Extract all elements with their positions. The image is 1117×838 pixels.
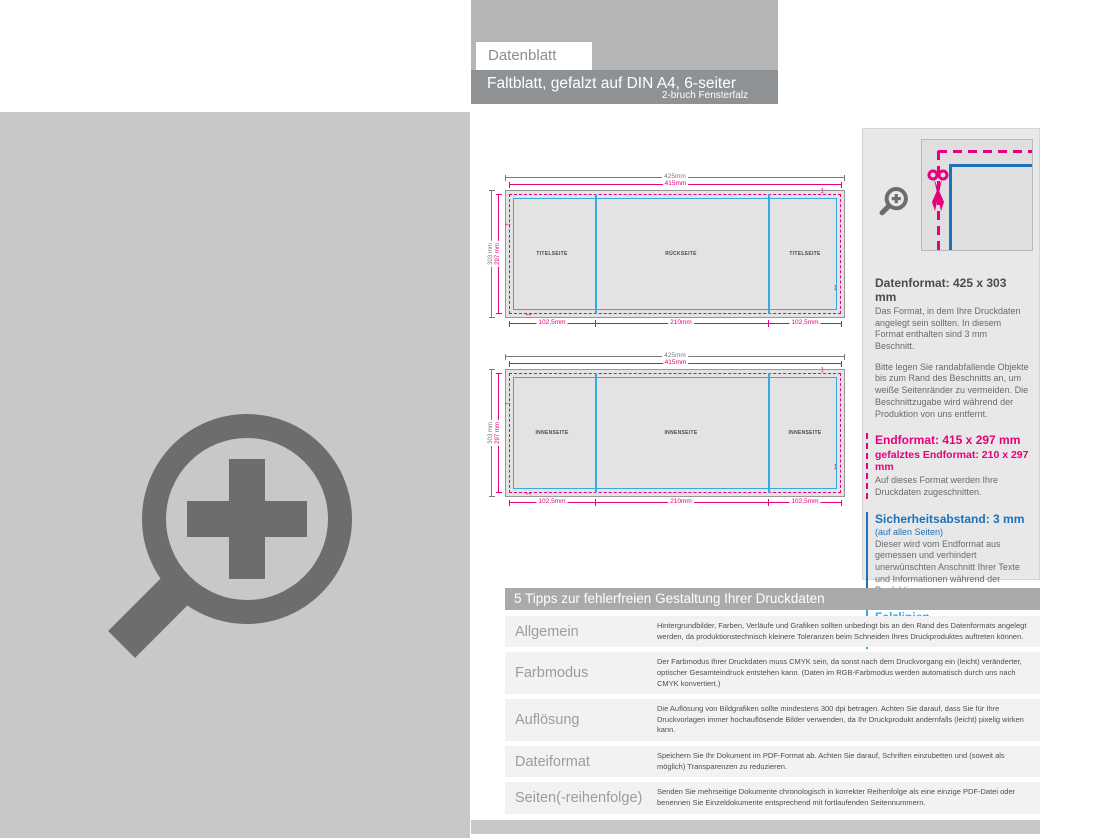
dim-height-end: 297 mm: [498, 373, 499, 493]
datenblatt-tab: Datenblatt: [476, 42, 592, 70]
fold-line: [595, 373, 597, 493]
corner-detail-figure: [875, 137, 1029, 263]
table-row: Farbmodus Der Farbmodus Ihrer Druckdaten…: [505, 652, 1040, 694]
tip-label: Allgemein: [505, 616, 657, 647]
scissors-icon: [926, 166, 950, 216]
fold-line: [768, 373, 770, 493]
tip-label: Dateiformat: [505, 746, 657, 777]
panel-label: INNENSEITE: [535, 430, 568, 436]
bleed-arrow-icon: ↕: [833, 283, 838, 292]
table-row: Auflösung Die Auflösung von Bildgrafiken…: [505, 699, 1040, 741]
fold-line: [768, 194, 770, 314]
trim-line-detail: [938, 150, 1032, 153]
datenformat-body: Das Format, in dem Ihre Druckdaten angel…: [875, 306, 1029, 353]
dim-label: 102,5mm: [536, 320, 567, 327]
dim-label: 303 mm: [488, 241, 494, 267]
sicherheitsabstand-heading: Sicherheitsabstand: 3 mm: [875, 512, 1029, 526]
zoom-plus-icon-small[interactable]: [877, 185, 911, 219]
panel-label: INNENSEITE: [788, 430, 821, 436]
table-row: Allgemein Hintergrundbilder, Farben, Ver…: [505, 616, 1040, 647]
tips-table: 5 Tipps zur fehlerfreien Gestaltung Ihre…: [505, 588, 1040, 819]
dim-label: 303 mm: [488, 420, 494, 446]
dim-label: 102,5mm: [789, 499, 820, 506]
title-bar: Faltblatt, gefalzt auf DIN A4, 6-seiter …: [471, 70, 778, 104]
panel-label: TITELSEITE: [536, 251, 567, 257]
tip-text: Der Farbmodus Ihrer Druckdaten muss CMYK…: [657, 652, 1040, 694]
tip-label: Farbmodus: [505, 652, 657, 694]
tip-label: Seiten(-reihenfolge): [505, 782, 657, 813]
tip-text: Die Auflösung von Bildgrafiken sollte mi…: [657, 699, 1040, 741]
dim-label: 297 mm: [495, 241, 501, 267]
panel-label: INNENSEITE: [664, 430, 697, 436]
page-subtitle: 2-bruch Fensterfalz: [662, 90, 748, 101]
bleed-arrow-icon: ↕: [820, 186, 825, 195]
dim-width-end: 415mm: [509, 363, 842, 364]
product-preview-placeholder[interactable]: [0, 112, 470, 838]
bleed-arrow-icon: ↕: [833, 462, 838, 471]
dim-bottom: 102,5mm 210mm 102,5mm: [509, 323, 842, 324]
dim-label: 102,5mm: [789, 320, 820, 327]
legend-panel: Datenformat: 425 x 303 mm Das Format, in…: [862, 128, 1040, 580]
fold-line: [595, 194, 597, 314]
tip-text: Hintergrundbilder, Farben, Verläufe und …: [657, 616, 1040, 647]
detail-corner-box: [921, 139, 1033, 251]
bleed-arrow-icon: ↔: [524, 488, 533, 497]
section-sicherheitsabstand: Sicherheitsabstand: 3 mm (auf allen Seit…: [866, 512, 1029, 597]
dim-width-data: 425mm: [505, 177, 845, 178]
tip-label: Auflösung: [505, 699, 657, 741]
bottom-strip: [471, 820, 1040, 834]
table-row: Dateiformat Speichern Sie Ihr Dokument i…: [505, 746, 1040, 777]
dim-label: 297 mm: [495, 420, 501, 446]
panel-label: TITELSEITE: [789, 251, 820, 257]
bleed-arrow-icon: ↕: [820, 365, 825, 374]
table-row: Seiten(-reihenfolge) Senden Sie mehrseit…: [505, 782, 1040, 813]
dim-bottom: 102,5mm 210mm 102,5mm: [509, 502, 842, 503]
dim-label: 102,5mm: [536, 499, 567, 506]
panel-label: RÜCKSEITE: [665, 251, 697, 257]
dim-label: 415mm: [663, 181, 689, 188]
section-datenformat: Datenformat: 425 x 303 mm Das Format, in…: [875, 276, 1029, 420]
endformat-subheading: gefalztes Endformat: 210 x 297 mm: [875, 449, 1029, 473]
dim-width-data: 425mm: [505, 356, 845, 357]
dim-height-end: 297 mm: [498, 194, 499, 314]
section-endformat: Endformat: 415 x 297 mm gefalztes Endfor…: [866, 433, 1029, 498]
endformat-heading: Endformat: 415 x 297 mm: [875, 433, 1029, 447]
datenformat-heading: Datenformat: 425 x 303 mm: [875, 276, 1029, 304]
dim-label: 210mm: [668, 320, 694, 327]
bleed-arrow-icon: ↔: [503, 219, 512, 228]
bleed-arrow-icon: ↔: [524, 309, 533, 318]
tip-text: Speichern Sie Ihr Dokument im PDF-Format…: [657, 746, 1040, 777]
diagram-outside: 425mm 415mm TITELSEITE RÜCKSEITE TITELSE…: [486, 171, 852, 333]
endformat-body: Auf dieses Format werden Ihre Druckdaten…: [875, 475, 1029, 498]
datenformat-body2: Bitte legen Sie randabfallende Objekte b…: [875, 362, 1029, 420]
bleed-arrow-icon: ↔: [503, 398, 512, 407]
dim-label: 210mm: [668, 499, 694, 506]
tip-text: Senden Sie mehrseitige Dokumente chronol…: [657, 782, 1040, 813]
dim-height-data: 303 mm: [491, 369, 492, 497]
tips-title: 5 Tipps zur fehlerfreien Gestaltung Ihre…: [505, 588, 1040, 610]
safety-line-detail: [949, 164, 1032, 167]
dim-width-end: 415mm: [509, 184, 842, 185]
sicherheitsabstand-subheading: (auf allen Seiten): [875, 527, 1029, 537]
zoom-plus-icon: [95, 402, 385, 672]
dim-height-data: 303 mm: [491, 190, 492, 318]
dim-label: 415mm: [663, 360, 689, 367]
diagram-inside: 425mm 415mm INNENSEITE INNENSEITE INNENS…: [486, 350, 852, 512]
